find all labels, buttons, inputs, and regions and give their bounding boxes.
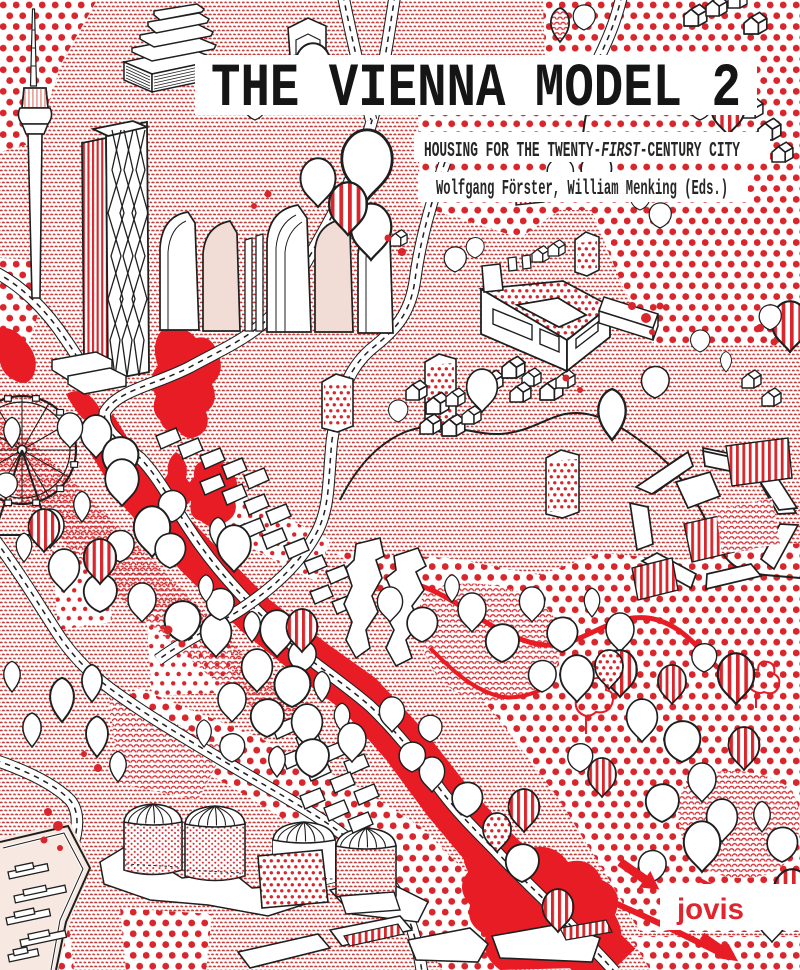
- svg-text:Wolfgang Förster, William Menk: Wolfgang Förster, William Menking (Eds.): [436, 178, 728, 201]
- svg-text:HOUSING FOR THE TWENTY-FIRST-C: HOUSING FOR THE TWENTY-FIRST-CENTURY CIT…: [424, 140, 740, 163]
- svg-text:THE VIENNA MODEL 2: THE VIENNA MODEL 2: [211, 55, 741, 124]
- svg-text:jovis: jovis: [676, 893, 744, 926]
